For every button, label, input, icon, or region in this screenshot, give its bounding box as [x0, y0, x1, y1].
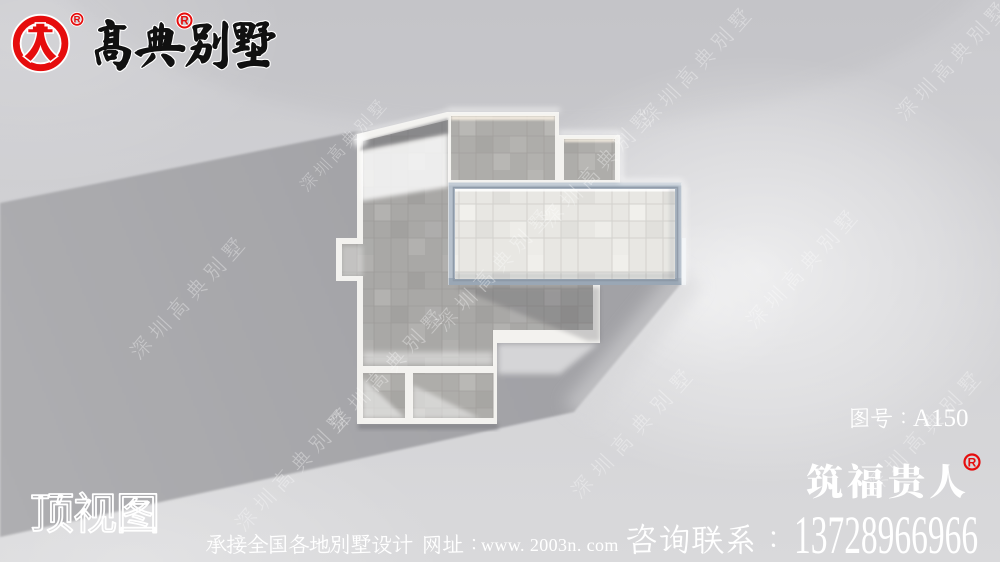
svg-text:13728966966: 13728966966	[794, 505, 978, 562]
svg-text:R: R	[180, 16, 189, 28]
svg-text:R: R	[74, 15, 81, 26]
svg-text:R: R	[968, 456, 977, 470]
svg-text:A150: A150	[913, 405, 969, 432]
svg-text:www. 2003n. com: www. 2003n. com	[481, 535, 619, 555]
